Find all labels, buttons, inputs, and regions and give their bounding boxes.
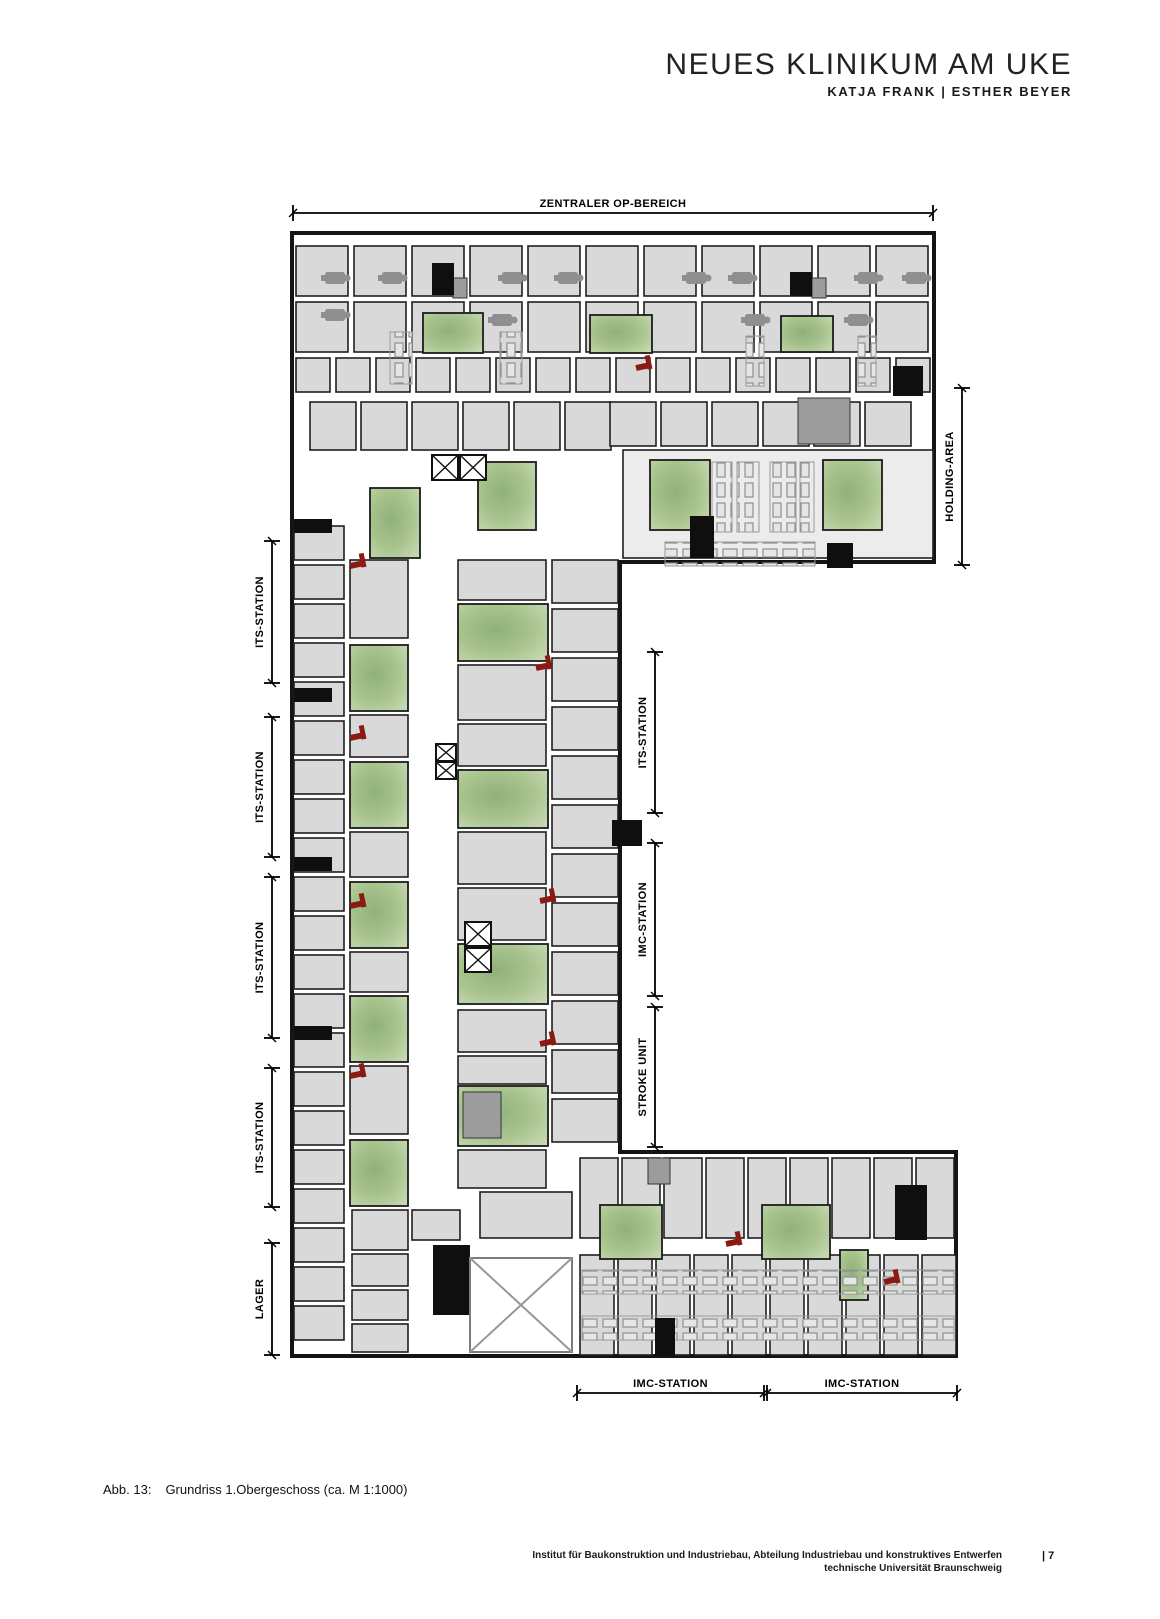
room (832, 1158, 870, 1238)
bed-row (746, 336, 764, 386)
figure-caption-text: Grundriss 1.Obergeschoss (ca. M 1:1000) (165, 1482, 407, 1497)
room (536, 358, 570, 392)
room (552, 1050, 618, 1093)
service-block (453, 278, 467, 298)
dimension-label: IMC-STATION (637, 882, 649, 957)
room (352, 1210, 408, 1250)
room (661, 402, 707, 446)
room (412, 402, 458, 450)
courtyard (350, 996, 408, 1062)
dimension-label: STROKE UNIT (637, 1038, 649, 1117)
dimension-label: IMC-STATION (825, 1378, 900, 1390)
room (552, 756, 618, 799)
room (552, 903, 618, 946)
core-block (433, 1245, 470, 1315)
room (294, 1267, 344, 1301)
room (352, 1290, 408, 1320)
room (480, 1192, 572, 1238)
room (865, 402, 911, 446)
courtyard (350, 882, 408, 948)
room (712, 402, 758, 446)
core-block (612, 820, 642, 846)
bed-row (665, 542, 815, 566)
bed-row (770, 462, 796, 532)
room (528, 302, 580, 352)
room (416, 358, 450, 392)
room (552, 805, 618, 848)
room (656, 358, 690, 392)
dimension-its-station: ITS-STATION (254, 713, 280, 861)
room (702, 246, 754, 296)
room (456, 358, 490, 392)
room (552, 854, 618, 897)
room (458, 1010, 546, 1052)
bed-row (390, 332, 412, 384)
core-block (690, 516, 714, 558)
bed-row (582, 1316, 954, 1340)
courtyard (762, 1205, 830, 1259)
room (294, 994, 344, 1028)
bed-row (712, 462, 732, 532)
room (458, 724, 546, 766)
room (706, 1158, 744, 1238)
core-block (827, 543, 853, 568)
dimension-label: IMC-STATION (633, 1378, 708, 1390)
page-number: | 7 (1042, 1550, 1054, 1562)
room (552, 658, 618, 701)
room (586, 246, 638, 296)
elevator-icon (465, 948, 491, 972)
dimension-zentraler-op-bereich: ZENTRALER OP-BEREICH (289, 198, 937, 221)
room (876, 302, 928, 352)
courtyard (350, 1140, 408, 1206)
room (552, 609, 618, 652)
room (361, 402, 407, 450)
dimension-its-station: ITS-STATION (254, 873, 280, 1042)
core-block (294, 688, 332, 702)
elevator-icon (436, 744, 456, 761)
elevator-icon (465, 922, 491, 946)
service-block (798, 398, 850, 444)
room (294, 604, 344, 638)
core-block (294, 1026, 332, 1040)
room (816, 358, 850, 392)
courtyard (600, 1205, 662, 1259)
room (552, 952, 618, 995)
room (458, 1056, 546, 1084)
room (294, 799, 344, 833)
room (552, 1099, 618, 1142)
courtyard (823, 460, 882, 530)
room (296, 358, 330, 392)
core-block (790, 272, 812, 296)
footer-line1: Institut für Baukonstruktion und Industr… (302, 1549, 1002, 1562)
dimension-imc-station: IMC-STATION (637, 839, 663, 1000)
room (696, 358, 730, 392)
room (470, 246, 522, 296)
dimension-imc-station: IMC-STATION (573, 1378, 768, 1401)
room (458, 560, 546, 600)
room (352, 1254, 408, 1286)
courtyard (458, 770, 548, 828)
dimension-label: ZENTRALER OP-BEREICH (540, 198, 687, 210)
dimension-its-station: ITS-STATION (254, 537, 280, 687)
service-block (463, 1092, 501, 1138)
bed-row (500, 332, 522, 384)
room (350, 832, 408, 877)
core-block (294, 857, 332, 871)
courtyard (781, 316, 833, 352)
dimension-label: ITS-STATION (254, 576, 266, 648)
dimension-imc-station: IMC-STATION (763, 1378, 961, 1401)
room (514, 402, 560, 450)
courtyard (370, 488, 420, 558)
dimension-lager: LAGER (254, 1239, 280, 1359)
core-block (895, 1185, 927, 1240)
room (296, 246, 348, 296)
room (294, 1111, 344, 1145)
room (412, 1210, 460, 1240)
room (458, 665, 546, 720)
room (294, 955, 344, 989)
room (336, 358, 370, 392)
dimension-label: HOLDING-AREA (944, 431, 956, 521)
elevator-icon (460, 455, 486, 480)
room (294, 1306, 344, 1340)
room (458, 832, 546, 884)
dimension-stroke-unit: STROKE UNIT (637, 1003, 663, 1151)
floor-plan: ZENTRALER OP-BEREICHHOLDING-AREAITS-STAT… (0, 0, 1160, 1619)
room (552, 1001, 618, 1044)
room (352, 1324, 408, 1352)
elevator-icon (436, 762, 456, 779)
dimension-label: ITS-STATION (254, 922, 266, 994)
room (310, 402, 356, 450)
room (294, 643, 344, 677)
room (294, 565, 344, 599)
footer: Institut für Baukonstruktion und Industr… (302, 1549, 1002, 1575)
room (294, 1189, 344, 1223)
courtyard (423, 313, 483, 353)
room (294, 1228, 344, 1262)
elevator-icon (432, 455, 458, 480)
room (463, 402, 509, 450)
room (458, 1150, 546, 1188)
room (876, 246, 928, 296)
room (644, 246, 696, 296)
service-block (648, 1158, 670, 1184)
dimension-holding-area: HOLDING-AREA (944, 384, 970, 569)
room (565, 402, 611, 450)
core-block (294, 519, 332, 533)
dimension-its-station: ITS-STATION (637, 648, 663, 817)
bed-row (800, 462, 814, 532)
core-block (893, 366, 923, 396)
bed-row (737, 462, 759, 532)
courtyard (590, 315, 652, 353)
core-block (655, 1318, 675, 1356)
page: NEUES KLINIKUM AM UKE KATJA FRANK | ESTH… (0, 0, 1160, 1619)
room (354, 246, 406, 296)
room (576, 358, 610, 392)
dimension-label: ITS-STATION (254, 751, 266, 823)
bed-row (858, 336, 876, 386)
room (294, 721, 344, 755)
service-block (812, 278, 826, 298)
room (552, 560, 618, 603)
room (528, 246, 580, 296)
footer-line2: technische Universität Braunschweig (302, 1562, 1002, 1575)
dimension-label: ITS-STATION (637, 697, 649, 769)
dimension-its-station: ITS-STATION (254, 1064, 280, 1211)
room (294, 877, 344, 911)
room (294, 1072, 344, 1106)
courtyard (458, 604, 548, 661)
dimension-label: ITS-STATION (254, 1102, 266, 1174)
courtyard (350, 645, 408, 711)
figure-caption: Abb. 13:Grundriss 1.Obergeschoss (ca. M … (103, 1482, 408, 1497)
courtyard (350, 762, 408, 828)
room (294, 1150, 344, 1184)
room (350, 952, 408, 992)
figure-caption-label: Abb. 13: (103, 1482, 151, 1497)
atrium-void (470, 1258, 572, 1352)
dimension-label: LAGER (254, 1279, 266, 1320)
room (294, 916, 344, 950)
room (776, 358, 810, 392)
core-block (432, 263, 454, 295)
room (610, 402, 656, 446)
room (552, 707, 618, 750)
room (294, 760, 344, 794)
room (350, 560, 408, 638)
